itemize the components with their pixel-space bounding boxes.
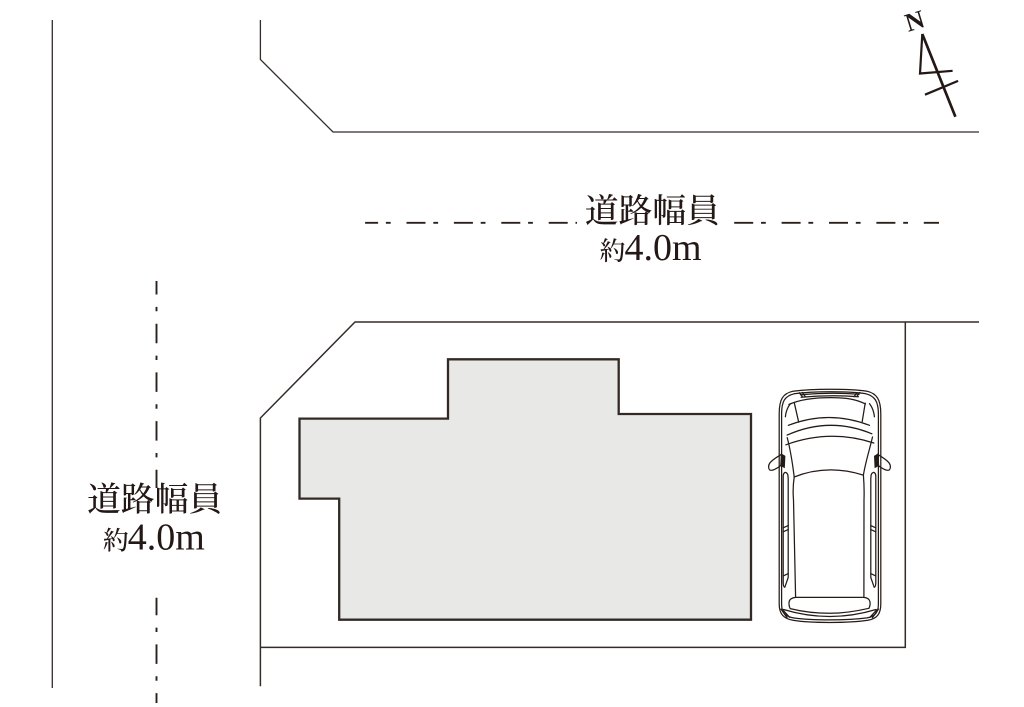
svg-text:N: N xyxy=(902,4,929,37)
svg-text:4.0m: 4.0m xyxy=(625,227,702,269)
svg-text:4.0m: 4.0m xyxy=(128,517,205,559)
